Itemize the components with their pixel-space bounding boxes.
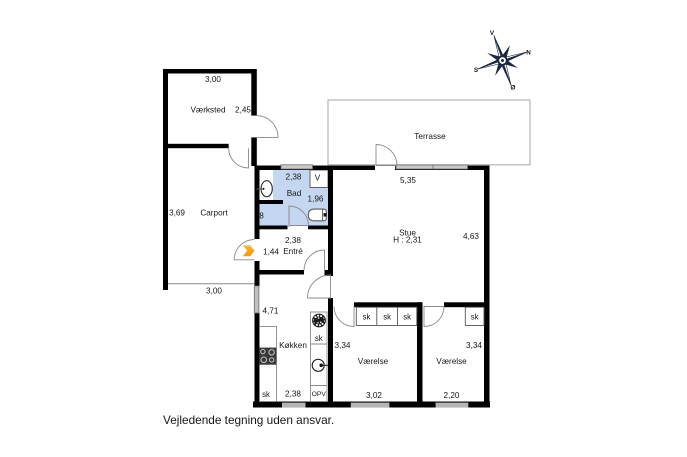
- svg-text:1,96: 1,96: [308, 194, 324, 203]
- svg-text:3,69: 3,69: [169, 208, 185, 217]
- svg-text:Værksted: Værksted: [190, 105, 225, 114]
- svg-text:5,35: 5,35: [400, 176, 416, 185]
- svg-text:3,34: 3,34: [466, 341, 482, 350]
- svg-text:OPV: OPV: [312, 391, 327, 398]
- svg-text:3,34: 3,34: [335, 341, 351, 350]
- svg-text:N: N: [526, 50, 531, 57]
- svg-text:Køkken: Køkken: [279, 341, 307, 350]
- svg-text:Entré: Entré: [283, 247, 303, 256]
- svg-text:2,38: 2,38: [286, 172, 302, 181]
- svg-text:8: 8: [259, 211, 264, 220]
- svg-text:sk: sk: [363, 312, 371, 321]
- svg-text:S: S: [474, 67, 478, 74]
- svg-text:H : 2,31: H : 2,31: [393, 236, 422, 245]
- svg-text:3,02: 3,02: [366, 391, 382, 400]
- svg-text:V: V: [315, 174, 321, 183]
- svg-text:Værelse: Værelse: [436, 357, 467, 366]
- svg-text:2,45: 2,45: [235, 105, 251, 114]
- svg-text:3,00: 3,00: [206, 286, 222, 295]
- svg-text:2,20: 2,20: [444, 391, 460, 400]
- svg-text:Carport: Carport: [200, 208, 228, 217]
- svg-text:Vejledende tegning uden ansvar: Vejledende tegning uden ansvar.: [163, 413, 334, 427]
- svg-text:2,38: 2,38: [285, 236, 301, 245]
- svg-text:3,00: 3,00: [205, 75, 221, 84]
- svg-text:sk: sk: [315, 334, 323, 343]
- svg-text:sk: sk: [471, 312, 479, 321]
- svg-text:4,71: 4,71: [263, 306, 279, 315]
- svg-text:sk: sk: [383, 312, 391, 321]
- svg-text:Værelse: Værelse: [358, 357, 389, 366]
- svg-text:sk: sk: [262, 390, 270, 399]
- svg-text:Terrasse: Terrasse: [414, 132, 446, 141]
- svg-text:4,63: 4,63: [463, 232, 479, 241]
- svg-text:Bad: Bad: [287, 189, 302, 198]
- svg-text:sk: sk: [403, 312, 411, 321]
- svg-text:Ø: Ø: [511, 85, 516, 92]
- svg-text:1,44: 1,44: [263, 247, 279, 256]
- svg-text:2,38: 2,38: [285, 389, 301, 398]
